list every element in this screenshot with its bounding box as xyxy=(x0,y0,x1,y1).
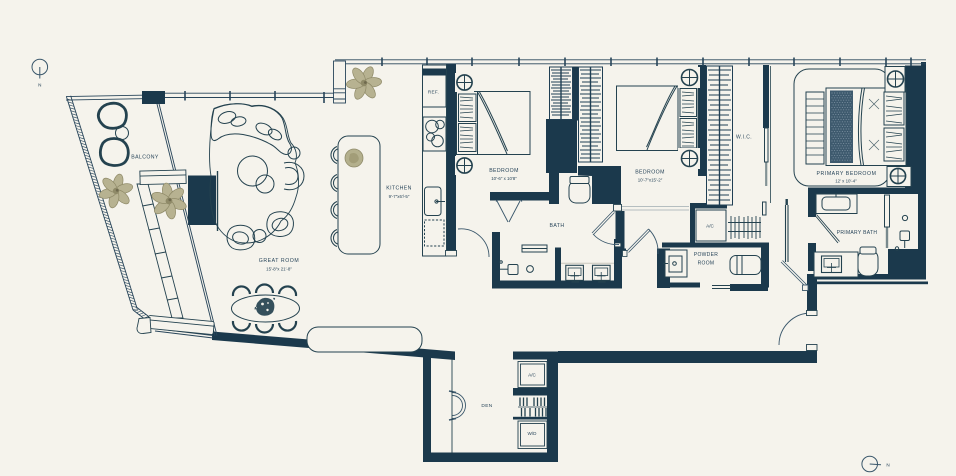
svg-text:REF.: REF. xyxy=(428,90,439,95)
svg-text:PRIMARY BATH: PRIMARY BATH xyxy=(837,230,878,236)
svg-text:A/C: A/C xyxy=(528,373,536,378)
svg-text:BATH: BATH xyxy=(549,223,564,229)
svg-text:KITCHEN: KITCHEN xyxy=(386,186,412,192)
svg-text:BEDROOM: BEDROOM xyxy=(489,168,519,174)
svg-text:12′ x 10′-4″: 12′ x 10′-4″ xyxy=(835,178,857,183)
svg-text:9′-7″x6′/-5″: 9′-7″x6′/-5″ xyxy=(389,194,410,199)
svg-text:W.I.C.: W.I.C. xyxy=(736,135,752,141)
svg-text:POWDER: POWDER xyxy=(694,252,718,258)
svg-text:N: N xyxy=(38,83,41,88)
svg-text:N: N xyxy=(886,463,889,468)
svg-text:BEDROOM: BEDROOM xyxy=(635,170,665,176)
svg-text:W/D: W/D xyxy=(528,431,538,436)
svg-text:PRIMARY BEDROOM: PRIMARY BEDROOM xyxy=(817,171,877,177)
svg-text:DEN: DEN xyxy=(481,403,492,409)
svg-text:GREAT ROOM: GREAT ROOM xyxy=(259,258,299,264)
svg-text:10′-6″ x 10′8″: 10′-6″ x 10′8″ xyxy=(491,176,517,181)
svg-text:10′-7″x15′-2″: 10′-7″x15′-2″ xyxy=(638,178,663,183)
svg-text:A/C: A/C xyxy=(706,224,714,229)
svg-text:ROOM: ROOM xyxy=(698,261,715,267)
svg-text:BALCONY: BALCONY xyxy=(131,155,159,161)
svg-text:15′-8″x 21′-8″: 15′-8″x 21′-8″ xyxy=(266,267,292,272)
